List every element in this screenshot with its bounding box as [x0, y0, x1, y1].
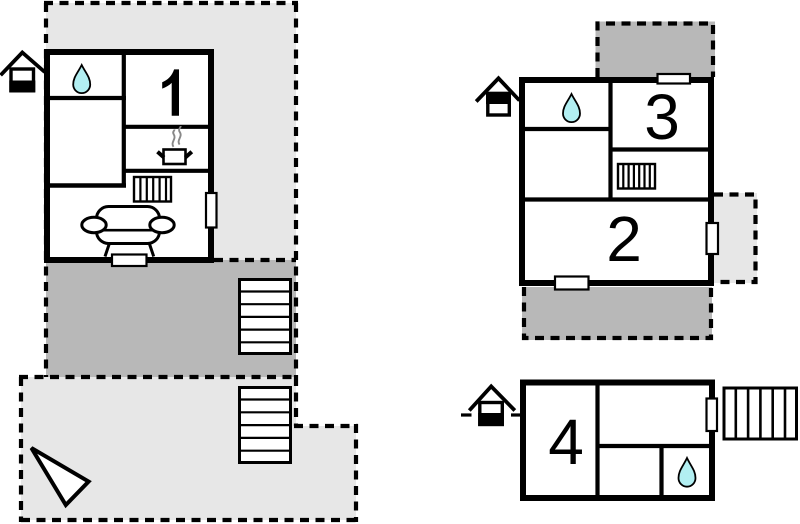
svg-text:2: 2 [606, 203, 642, 275]
svg-text:4: 4 [548, 406, 584, 478]
svg-text:3: 3 [644, 81, 680, 153]
